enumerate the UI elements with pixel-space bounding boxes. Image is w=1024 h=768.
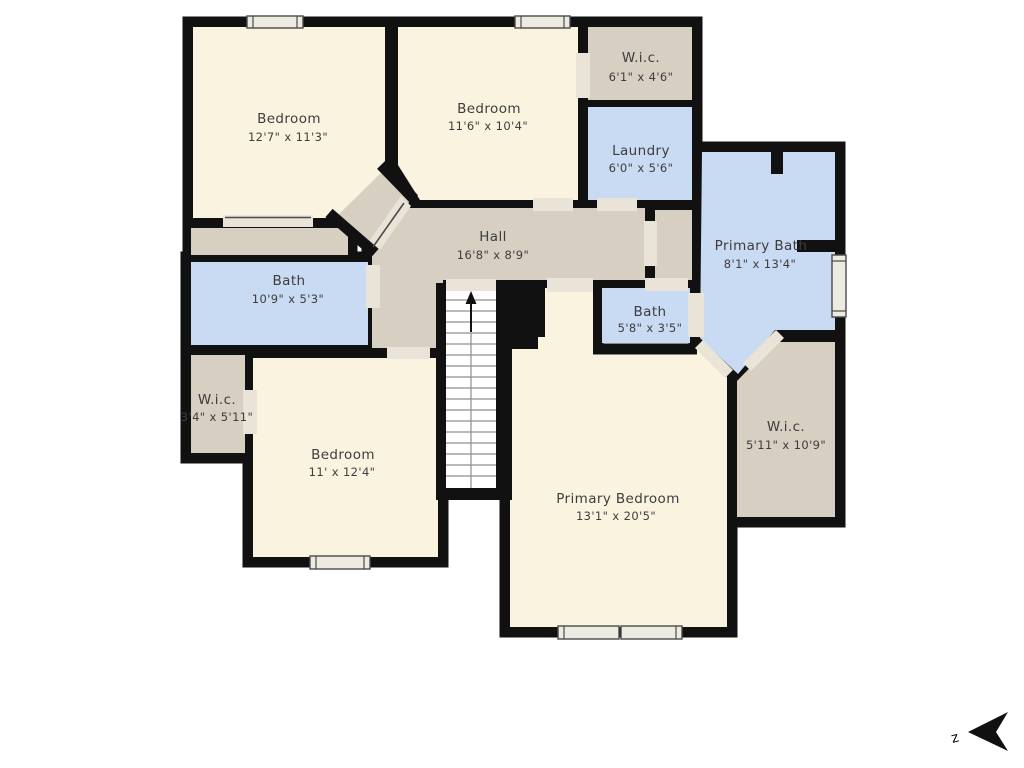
opening-stairs xyxy=(446,279,496,291)
label-hall: Hall xyxy=(479,229,507,245)
dims-bath-small: 5'8" x 3'5" xyxy=(618,321,683,335)
primary-bath-stub-vertical xyxy=(771,152,783,174)
label-bath: Bath xyxy=(273,273,306,289)
window-primary-bath xyxy=(832,255,846,317)
floor-plan-page: Bedroom 12'7" x 11'3" Bedroom 11'6" x 10… xyxy=(0,0,1024,768)
door-bedroom-bottom-left xyxy=(387,347,430,359)
dims-bedroom-top-left: 12'7" x 11'3" xyxy=(248,130,328,144)
dims-laundry: 6'0" x 5'6" xyxy=(609,161,674,175)
hall-strip xyxy=(191,228,348,255)
dims-wic-bottom-right: 5'11" x 10'9" xyxy=(746,438,826,452)
chimney-block xyxy=(498,280,545,337)
window-bedroom-top-left xyxy=(247,16,303,28)
label-primary-bedroom: Primary Bedroom xyxy=(556,491,680,507)
staircase xyxy=(446,290,496,488)
label-laundry: Laundry xyxy=(612,143,670,159)
dims-bedroom-bottom-left: 11' x 12'4" xyxy=(309,465,376,479)
dims-wic-left: 3'4" x 5'11" xyxy=(181,410,253,424)
door-bath xyxy=(366,265,380,308)
dims-hall: 16'8" x 8'9" xyxy=(457,248,529,262)
door-laundry xyxy=(597,198,637,211)
door-wic-top-right xyxy=(576,53,590,98)
label-bedroom-top: Bedroom xyxy=(457,101,521,117)
north-arrow-icon xyxy=(968,712,1008,751)
dims-bedroom-top: 11'6" x 10'4" xyxy=(448,119,528,133)
dims-primary-bedroom: 13'1" x 20'5" xyxy=(576,509,656,523)
door-primary-bedroom xyxy=(547,278,593,292)
door-bath-small-north xyxy=(645,278,688,291)
door-bath-small-east xyxy=(688,293,704,337)
window-bedroom-top xyxy=(515,16,570,28)
label-primary-bath: Primary Bath xyxy=(715,238,808,254)
floor-plan-canvas: Bedroom 12'7" x 11'3" Bedroom 11'6" x 10… xyxy=(0,0,1024,768)
label-bedroom-top-left: Bedroom xyxy=(257,111,321,127)
hall-corridor-east xyxy=(655,210,692,280)
dims-wic-top-right: 6'1" x 4'6" xyxy=(609,70,674,84)
north-label: z xyxy=(949,729,960,746)
label-bedroom-bottom-left: Bedroom xyxy=(311,447,375,463)
label-wic-top-right: W.i.c. xyxy=(622,50,660,66)
label-wic-bottom-right: W.i.c. xyxy=(767,419,805,435)
door-bedroom-top xyxy=(533,198,573,211)
room-hall xyxy=(414,208,645,280)
dims-primary-bath: 8'1" x 13'4" xyxy=(724,257,796,271)
north-indicator: z xyxy=(949,712,1008,751)
chimney-block-step xyxy=(498,337,538,349)
dims-bath: 10'9" x 5'3" xyxy=(252,292,324,306)
label-wic-left: W.i.c. xyxy=(198,392,236,408)
window-bedroom-bottom-left xyxy=(310,556,370,569)
door-hall-east xyxy=(644,221,657,266)
label-bath-small: Bath xyxy=(634,304,667,320)
